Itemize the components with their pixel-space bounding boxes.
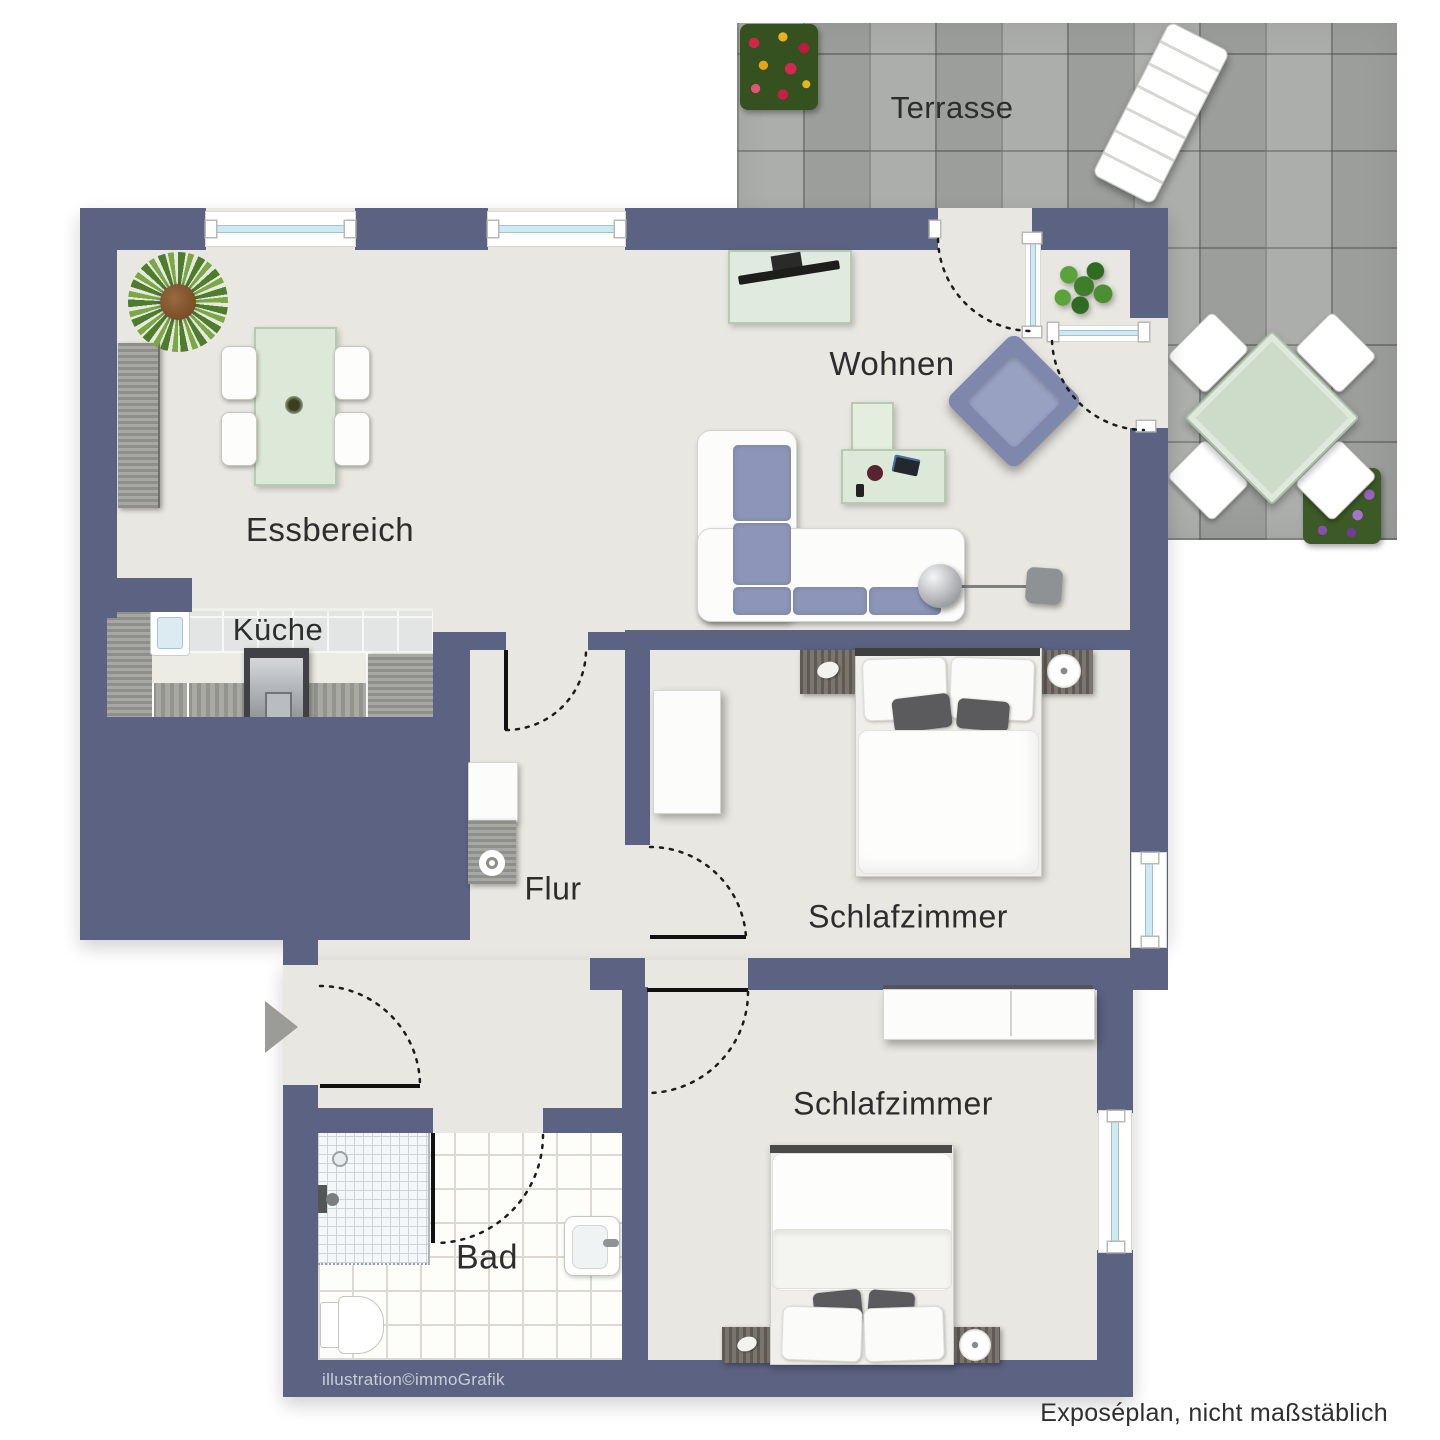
remote-icon (856, 484, 864, 497)
wall (1032, 208, 1168, 250)
table-lamp-icon (735, 1334, 759, 1354)
wall (80, 717, 470, 940)
room-label-schlafzimmer-1: Schlafzimmer (808, 899, 1008, 936)
washer-top (468, 762, 518, 822)
sofa-cushion (733, 523, 791, 585)
wall (355, 208, 488, 250)
door-cap (1139, 323, 1149, 341)
kitchen-tall-cabinet (368, 654, 433, 726)
basin (572, 1225, 608, 1269)
armchair-seat (966, 353, 1062, 449)
shower-drain (332, 1151, 348, 1167)
faucet-icon (603, 1239, 619, 1247)
footboard (770, 1145, 952, 1153)
folded-blanket (772, 1229, 952, 1289)
dining-chair-icon (221, 412, 257, 466)
double-bed-icon (855, 648, 1040, 875)
lamp-shade (1025, 567, 1063, 605)
wall (625, 208, 938, 250)
wall (80, 578, 192, 612)
toilet-bowl (338, 1296, 384, 1354)
washbasin-icon (564, 1216, 620, 1276)
window-cap (1108, 1111, 1124, 1121)
room-label-schlafzimmer-2: Schlafzimmer (793, 1086, 993, 1123)
wall (318, 1108, 433, 1133)
window-cap (206, 221, 216, 237)
oven-window (265, 692, 292, 720)
sofa-cushion (793, 587, 867, 615)
nightstand-icon (722, 1327, 772, 1363)
washing-machine-icon (468, 762, 516, 884)
sofa-cushion (733, 445, 791, 521)
bowl-icon (867, 465, 883, 481)
wardrobe-body (883, 989, 1095, 1040)
door-cap (1023, 327, 1041, 337)
wall (590, 958, 645, 990)
door-cap (1048, 323, 1058, 341)
window-glass (1112, 1119, 1118, 1244)
sink-basin (157, 617, 183, 649)
stove-icon (244, 648, 309, 725)
shower-head (326, 1193, 339, 1206)
wall (283, 940, 318, 965)
washer-door (479, 850, 505, 876)
lamp-base-sphere (918, 564, 962, 608)
wall (80, 208, 117, 618)
dining-chair-icon (334, 412, 370, 466)
wall (1097, 1250, 1133, 1363)
wall (625, 650, 650, 845)
illustration-credit: illustration©immoGrafik (322, 1370, 505, 1390)
flower-box-icon (740, 24, 818, 110)
wall (622, 987, 648, 1363)
room-label-bad: Bad (456, 1239, 518, 1278)
sideboard-icon (118, 343, 160, 508)
table-lamp-icon (959, 1329, 991, 1361)
scale-disclaimer: Exposéplan, nicht maßstäblich (1040, 1399, 1388, 1428)
wall (625, 630, 1168, 650)
window-cap (1142, 937, 1158, 947)
pillow (863, 1306, 945, 1363)
palm-pot (160, 284, 196, 320)
floor-hall-strip (283, 940, 1168, 960)
accent-pillow (956, 698, 1010, 732)
window-cap (1108, 1242, 1124, 1252)
wardrobe-divider (1010, 991, 1012, 1036)
wall (588, 632, 625, 650)
window-glass (214, 226, 347, 232)
pillow (781, 1306, 863, 1363)
room-label-essbereich: Essbereich (246, 511, 414, 549)
dining-chair-icon (334, 346, 370, 400)
terrace-door-glass (1058, 331, 1139, 335)
coffee-table-icon (841, 449, 946, 504)
nightstand-icon (950, 1327, 1000, 1363)
door-cap (1023, 233, 1041, 243)
nightstand-icon (800, 650, 855, 694)
floor-lamp-icon (918, 564, 1068, 610)
window-glass (496, 226, 617, 232)
dining-chair-icon (221, 346, 257, 400)
nightstand-icon (1037, 650, 1093, 694)
double-bed-icon (770, 1145, 952, 1363)
entrance-arrow-icon (265, 1001, 298, 1053)
shower-icon (318, 1133, 430, 1265)
wall (283, 1105, 318, 1397)
room-label-terrasse: Terrasse (891, 90, 1014, 126)
table-lamp-icon (815, 659, 841, 681)
toilet-icon (320, 1296, 384, 1352)
wall (1097, 958, 1168, 990)
coffee-table-icon (851, 402, 894, 456)
door-cap (930, 221, 940, 237)
window-cap (345, 221, 355, 237)
room-label-flur: Flur (524, 871, 581, 908)
wardrobe-icon (883, 985, 1093, 1038)
kitchen-sink-icon (150, 610, 190, 656)
sofa-cushion (733, 587, 791, 615)
wardrobe-icon (653, 690, 721, 814)
floor-plan: Terrasse (0, 0, 1440, 1440)
duvet (858, 730, 1039, 874)
wall (433, 632, 506, 650)
tablet-icon (892, 454, 921, 476)
accent-pillow (891, 693, 953, 734)
door-cap (1137, 421, 1155, 431)
terrace-door-glass (1031, 243, 1035, 325)
table-lamp-icon (1047, 654, 1081, 688)
kitchen-unit-icon (107, 608, 152, 728)
room-label-wohnen: Wohnen (829, 345, 954, 383)
room-label-kueche: Küche (233, 612, 323, 648)
wall (80, 608, 107, 720)
dining-table-icon (254, 327, 337, 486)
tv-sideboard-icon (728, 250, 852, 324)
bush-plant-icon (1046, 252, 1122, 328)
wall (1097, 990, 1133, 1113)
potted-palm-icon (128, 252, 228, 352)
table-centerpiece (285, 396, 303, 414)
wall (1130, 248, 1168, 318)
headboard (855, 648, 1040, 656)
window-cap (615, 221, 625, 237)
window-cap (488, 221, 498, 237)
window-cap (1142, 853, 1158, 863)
window-glass (1146, 861, 1152, 939)
